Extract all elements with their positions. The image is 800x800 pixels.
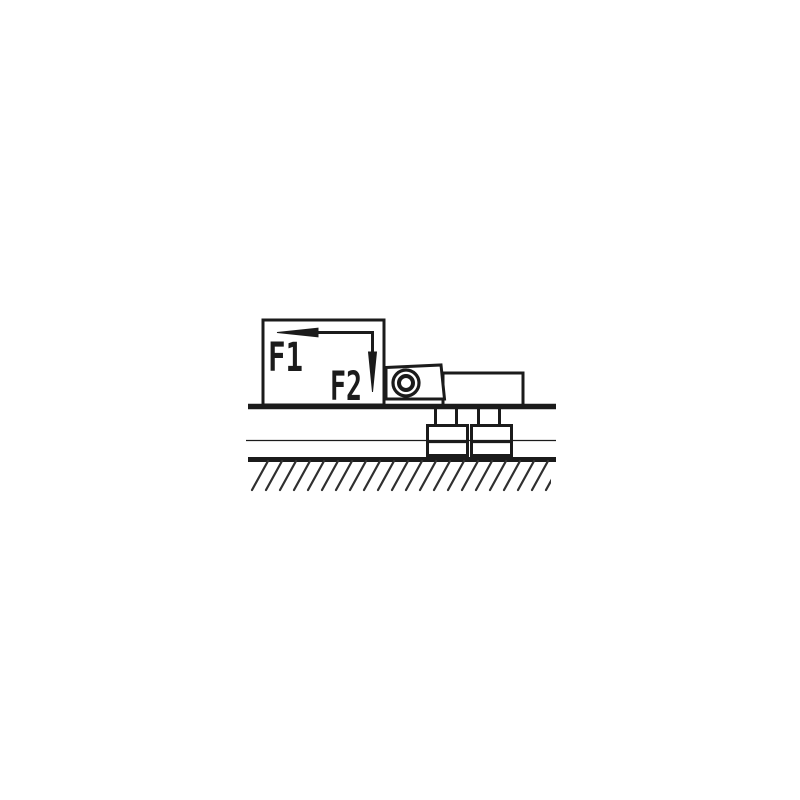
hatch-strokes	[252, 461, 562, 490]
ground-hatching	[252, 461, 562, 490]
technical-diagram: F1 F2	[0, 0, 800, 800]
diagram-root: F1 F2	[246, 320, 562, 490]
workpiece-bar	[443, 373, 523, 406]
force-f2-label: F2	[330, 364, 362, 410]
force-f1-label: F1	[268, 335, 303, 381]
drawing-canvas: F1 F2	[0, 0, 800, 800]
